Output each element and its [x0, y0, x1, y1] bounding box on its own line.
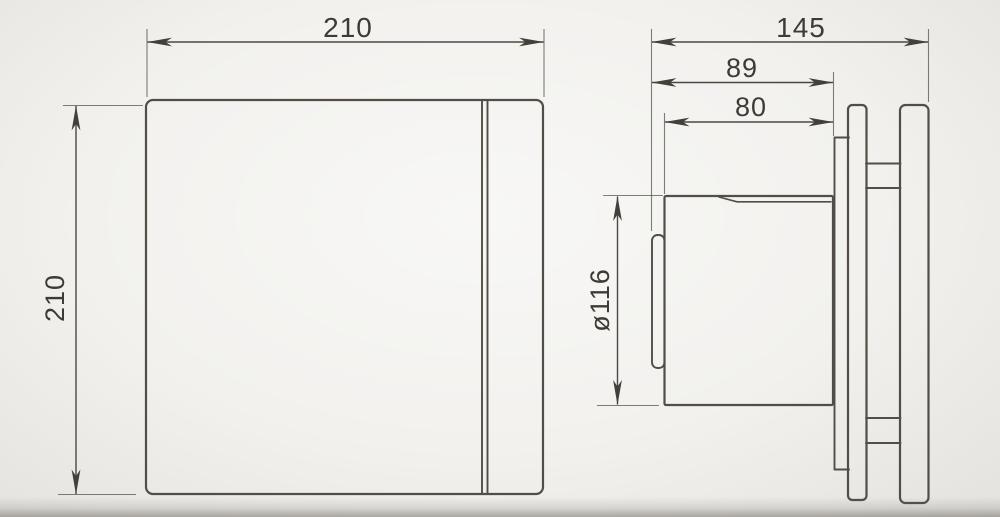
duct-diameter-dimension-label: ø116 [585, 268, 615, 332]
side-back-plate [900, 105, 929, 503]
front-height-dimension-label: 210 [40, 274, 70, 322]
front-width-dimension-label: 210 [323, 12, 373, 43]
technical-drawing: 210 210 145 89 [0, 0, 1000, 517]
mounting-depth-dimension-label: 89 [726, 53, 758, 83]
front-view [146, 100, 543, 494]
overall-depth-dimension-label: 145 [776, 12, 826, 43]
front-width-dimension: 210 [147, 12, 544, 97]
duct-length-dimension: 80 [665, 92, 834, 194]
side-duct-body [665, 196, 834, 405]
side-inner-flange [835, 138, 850, 470]
front-height-dimension: 210 [40, 106, 143, 495]
side-duct-wall-detail [719, 197, 831, 202]
side-mounting-plate [848, 105, 867, 500]
front-panel-outline [146, 100, 543, 494]
duct-length-dimension-label: 80 [735, 92, 767, 122]
side-front-panel-edge [652, 235, 665, 368]
side-view [652, 105, 929, 503]
